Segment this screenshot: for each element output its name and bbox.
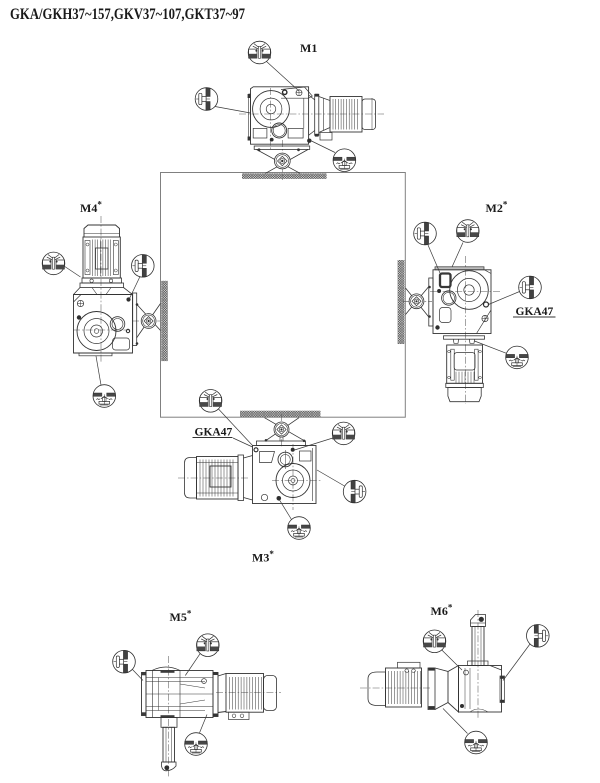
svg-text:M5*: M5* [170,609,192,625]
svg-text:M2*: M2* [486,200,508,216]
svg-text:M1: M1 [300,41,317,55]
svg-text:M6*: M6* [431,603,453,619]
svg-text:M4*: M4* [80,200,102,216]
svg-text:GKA47: GKA47 [195,427,233,439]
svg-text:M3*: M3* [252,549,274,565]
svg-text:GKA/GKH37~157,GKV37~107,GKT37~: GKA/GKH37~157,GKV37~107,GKT37~97 [10,6,245,23]
svg-text:GKA47: GKA47 [516,306,554,318]
